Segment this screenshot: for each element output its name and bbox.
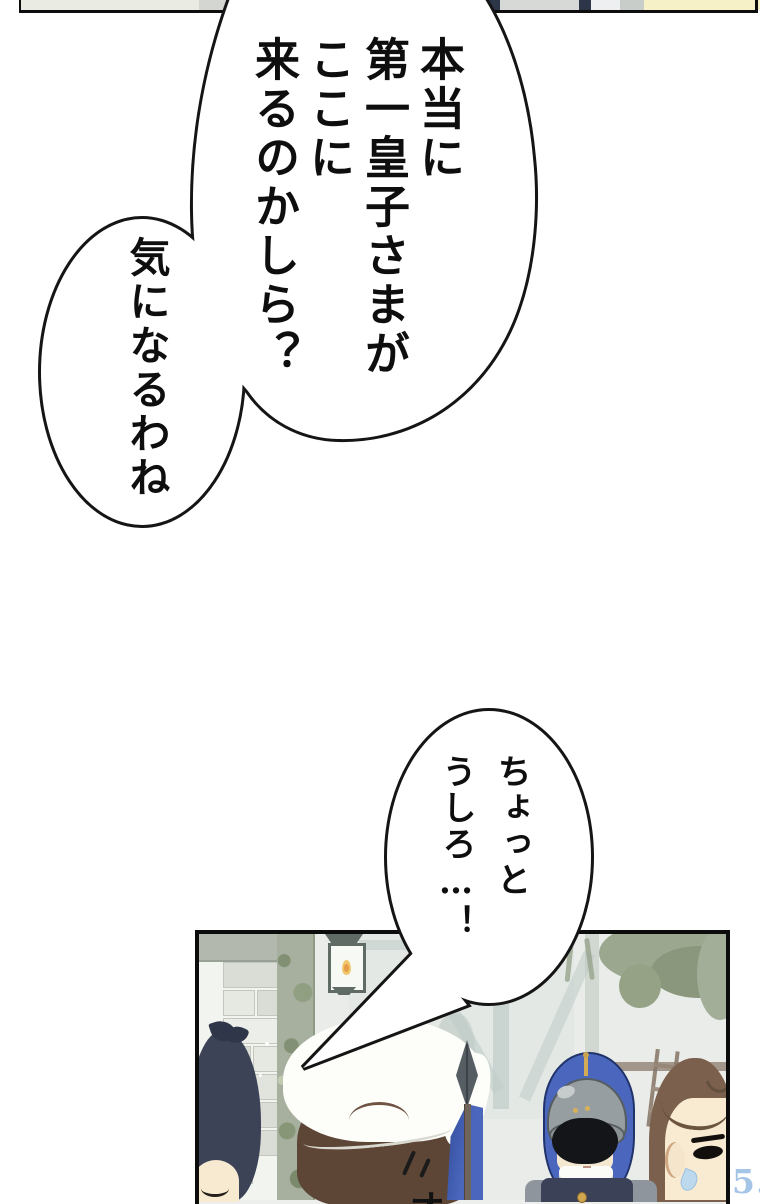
bubble-main-col-4: 来るのかしら？ bbox=[246, 36, 301, 456]
manga-page: { "speech": { "bubble_main": { "columns"… bbox=[0, 0, 760, 1200]
bubble-main-col-1: 本当に bbox=[411, 36, 466, 456]
bubble-sub-text: 気になるわね bbox=[122, 236, 170, 536]
bubble-main-text: 本当に 第一皇子さまが ここに 来るのかしら？ bbox=[240, 36, 466, 456]
bubble-warning-text: ちょっと うしろ…！ bbox=[420, 754, 538, 984]
bubble-warning-col-2: うしろ…！ bbox=[428, 754, 483, 984]
bubble-main-col-2: 第一皇子さまが bbox=[356, 36, 411, 456]
bubble-main-col-3: ここに bbox=[301, 36, 356, 456]
bubble-warning-col-1: ちょっと bbox=[483, 754, 538, 984]
